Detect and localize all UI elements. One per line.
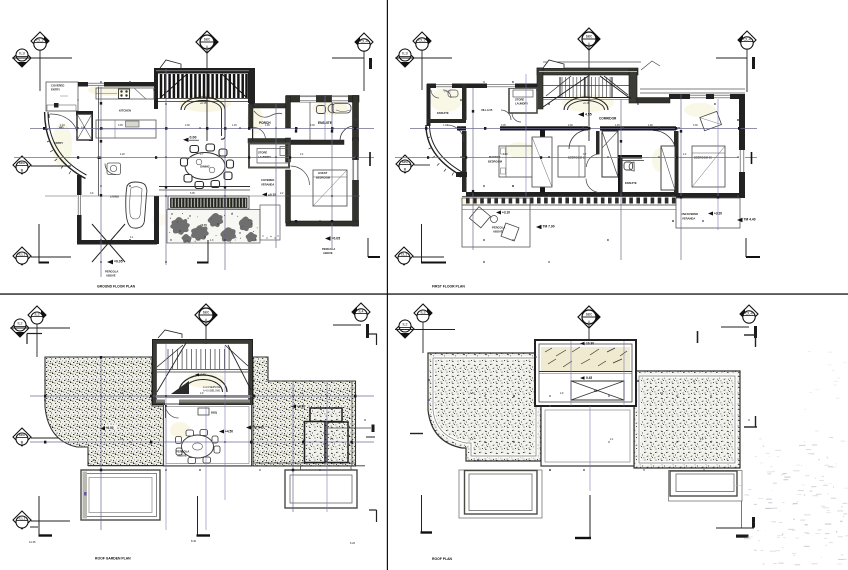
svg-text:GUEST: GUEST: [318, 171, 328, 175]
svg-text:=0.05: =0.05: [332, 237, 341, 241]
svg-text:KITCHEN: KITCHEN: [119, 109, 131, 113]
svg-text:+3.10: +3.10: [502, 211, 510, 215]
svg-text:FIRST FLOOR PLAN: FIRST FLOOR PLAN: [432, 285, 465, 289]
svg-text:ENTRY: ENTRY: [54, 141, 63, 145]
svg-text:PERGOLA: PERGOLA: [176, 450, 189, 454]
svg-text:A: A: [205, 45, 208, 50]
svg-text:COVERED: COVERED: [261, 178, 274, 182]
svg-text:3.05: 3.05: [501, 124, 506, 127]
svg-text:BBQ: BBQ: [211, 411, 217, 415]
svg-text:4.20: 4.20: [120, 153, 125, 156]
svg-text:1.45: 1.45: [615, 124, 620, 127]
svg-text:=0.05: =0.05: [114, 260, 123, 264]
svg-text:PERGOLA: PERGOLA: [492, 226, 505, 230]
svg-text:IL4: IL4: [359, 310, 364, 314]
svg-text:VILLA 05: VILLA 05: [481, 108, 493, 112]
svg-text:IL3: IL3: [421, 311, 426, 315]
svg-text:=0.70: =0.70: [200, 223, 207, 227]
svg-text:4.20: 4.20: [503, 153, 508, 156]
svg-text:+4.50: +4.50: [297, 405, 305, 409]
svg-text:10.30: 10.30: [586, 342, 594, 346]
svg-text:TM 7.90: TM 7.90: [543, 225, 555, 229]
svg-text:sec: sec: [204, 37, 211, 42]
svg-text:LIVING: LIVING: [110, 195, 119, 199]
svg-text:4.55: 4.55: [585, 113, 592, 117]
svg-text:ROOF PLAN: ROOF PLAN: [432, 557, 453, 561]
svg-text:+0.15: +0.15: [583, 101, 590, 105]
svg-text:TM 7.45: TM 7.45: [252, 426, 264, 430]
svg-text:IL3: IL3: [19, 51, 25, 56]
svg-text:TM 4.40: TM 4.40: [744, 218, 756, 222]
svg-text:3.30: 3.30: [693, 124, 698, 127]
svg-text:CL4: CL4: [360, 39, 368, 44]
svg-text:1.10: 1.10: [443, 124, 448, 127]
svg-text:PERGOLA: PERGOLA: [105, 270, 118, 274]
svg-text:sec: sec: [586, 312, 593, 317]
svg-text:LAUNDRY: LAUNDRY: [258, 155, 271, 159]
svg-text:UNCOVERED: UNCOVERED: [681, 212, 698, 216]
svg-text:ABOVE: ABOVE: [106, 274, 116, 278]
svg-text:VERANDA: VERANDA: [261, 183, 274, 187]
svg-text:IL3: IL3: [35, 313, 40, 317]
svg-text:LN: LN: [81, 126, 85, 130]
svg-text:ROOF GARDEN PLAN: ROOF GARDEN PLAN: [95, 557, 131, 561]
svg-text:CL4: CL4: [745, 311, 753, 316]
svg-text:CORRIDOR: CORRIDOR: [599, 117, 617, 121]
svg-text:A: A: [587, 42, 590, 47]
svg-text:ILL1: ILL1: [19, 253, 26, 257]
svg-text:ENTRY: ENTRY: [51, 88, 60, 92]
svg-text:1.10: 1.10: [60, 124, 65, 127]
svg-text:0.00: 0.00: [190, 136, 197, 140]
svg-text:IL2: IL2: [403, 323, 408, 327]
svg-text:VERANDA: VERANDA: [682, 217, 695, 221]
svg-text:CL4: CL4: [743, 37, 751, 42]
svg-text:COVERED: COVERED: [51, 84, 64, 88]
svg-text:CL1: CL1: [401, 253, 408, 257]
svg-text:3.05: 3.05: [118, 124, 123, 127]
svg-text:+4.55: +4.55: [444, 90, 451, 94]
svg-text:STORE: STORE: [258, 151, 267, 155]
svg-text:+4.50: +4.50: [225, 430, 233, 434]
svg-text:B: B: [21, 440, 24, 445]
svg-text:IL2: IL2: [18, 322, 23, 326]
svg-text:1.90: 1.90: [265, 124, 270, 127]
svg-text:CL2: CL2: [36, 38, 44, 43]
svg-text:IL3: IL3: [402, 51, 408, 56]
svg-text:sec: sec: [19, 432, 25, 437]
svg-text:CL2: CL2: [418, 38, 426, 43]
svg-text:5.05: 5.05: [190, 192, 195, 195]
svg-text:+6.50: +6.50: [106, 426, 114, 430]
svg-text:+0.15: +0.15: [200, 101, 207, 105]
svg-text:12.35: 12.35: [29, 540, 36, 544]
svg-text:sec: sec: [402, 159, 408, 164]
svg-text:8.40: 8.40: [191, 539, 197, 543]
svg-text:SK: SK: [594, 389, 598, 393]
svg-text:A: A: [204, 318, 207, 323]
svg-text:2.30: 2.30: [185, 124, 190, 127]
svg-text:A: A: [587, 320, 590, 325]
svg-text:3.30: 3.30: [310, 124, 315, 127]
svg-text:2.30: 2.30: [568, 124, 573, 127]
svg-text:+6.60: +6.60: [199, 373, 206, 377]
svg-text:B: B: [21, 168, 24, 173]
svg-text:ABOVE: ABOVE: [323, 251, 333, 255]
svg-text:BEDROOM: BEDROOM: [316, 176, 331, 180]
svg-text:BEDROOM: BEDROOM: [488, 160, 503, 164]
svg-text:6.20: 6.20: [350, 541, 356, 545]
svg-text:DINING: DINING: [200, 165, 209, 169]
svg-text:B: B: [404, 167, 407, 172]
svg-text:sec: sec: [586, 34, 593, 39]
svg-text:=0.15: =0.15: [268, 193, 276, 197]
svg-text:ENSUITE: ENSUITE: [625, 181, 637, 185]
svg-text:STORE: STORE: [515, 98, 524, 102]
svg-text:A 4.0 (BELOW): A 4.0 (BELOW): [203, 390, 220, 393]
svg-text:ILL1: ILL1: [19, 517, 26, 521]
svg-text:ENSUITE: ENSUITE: [437, 111, 449, 115]
svg-text:1.45: 1.45: [232, 124, 237, 127]
svg-text:9.45: 9.45: [586, 376, 592, 380]
svg-text:GROUND FLOOR PLAN: GROUND FLOOR PLAN: [97, 285, 136, 289]
svg-text:sec: sec: [19, 160, 25, 165]
svg-text:1.90: 1.90: [648, 124, 653, 127]
svg-text:sec: sec: [203, 310, 210, 315]
svg-text:PERGOLA: PERGOLA: [322, 247, 335, 251]
svg-text:ABOVE: ABOVE: [177, 454, 187, 458]
svg-text:ABOVE: ABOVE: [493, 230, 503, 234]
